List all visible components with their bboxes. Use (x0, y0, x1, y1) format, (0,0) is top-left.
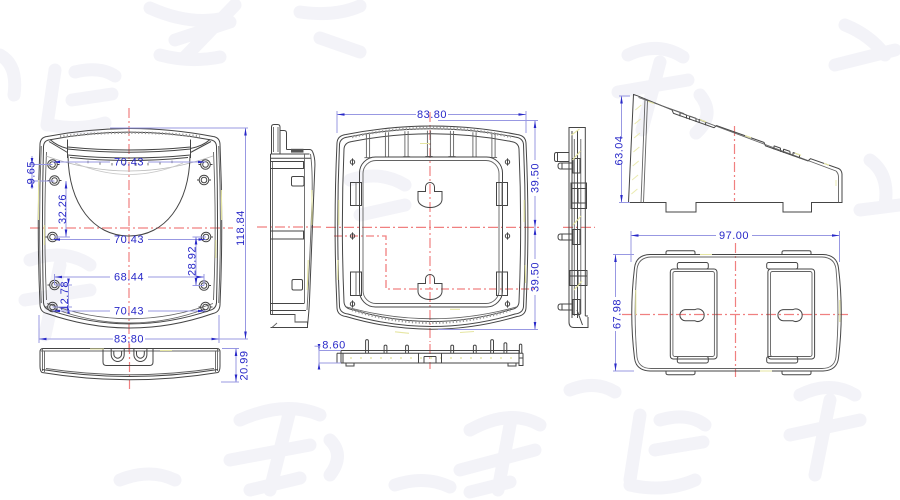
svg-text:83.80: 83.80 (417, 109, 447, 121)
svg-text:118.84: 118.84 (235, 210, 247, 246)
svg-text:70.43: 70.43 (114, 234, 144, 246)
svg-text:70.43: 70.43 (114, 306, 144, 318)
svg-text:12.78: 12.78 (59, 281, 71, 311)
svg-text:39.50: 39.50 (530, 163, 542, 193)
svg-text:67.98: 67.98 (612, 299, 624, 329)
svg-text:70.43: 70.43 (114, 157, 144, 169)
svg-text:39.50: 39.50 (530, 262, 542, 292)
svg-text:32.26: 32.26 (57, 194, 69, 224)
svg-text:9.65: 9.65 (26, 161, 38, 184)
svg-text:97.00: 97.00 (719, 230, 749, 242)
svg-text:63.04: 63.04 (614, 135, 626, 165)
svg-text:28.92: 28.92 (187, 246, 199, 276)
svg-text:83.80: 83.80 (114, 334, 144, 346)
svg-text:8.60: 8.60 (322, 340, 345, 352)
svg-text:68.44: 68.44 (114, 272, 144, 284)
svg-text:20.99: 20.99 (239, 350, 251, 380)
